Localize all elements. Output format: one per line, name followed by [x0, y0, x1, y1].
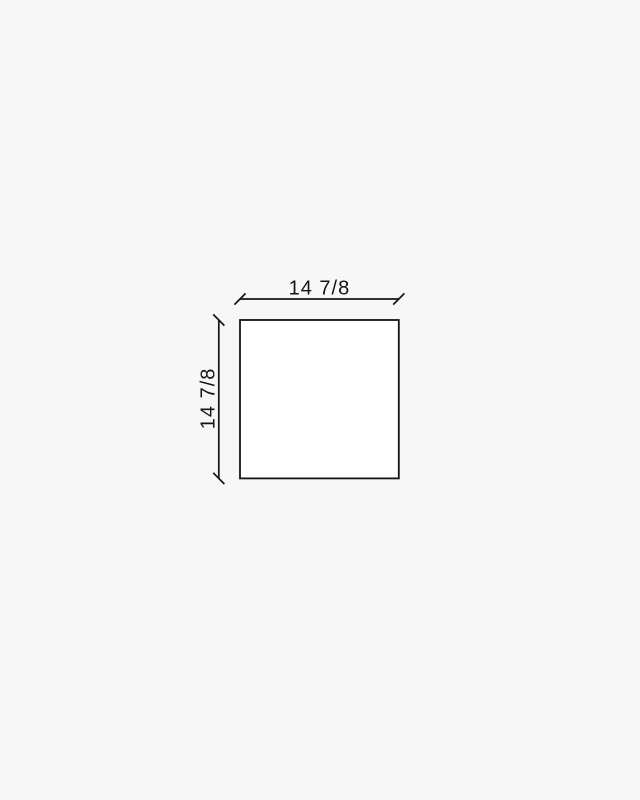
svg-text:14 7/8: 14 7/8 [289, 278, 351, 300]
svg-text:14 7/8: 14 7/8 [197, 368, 219, 430]
